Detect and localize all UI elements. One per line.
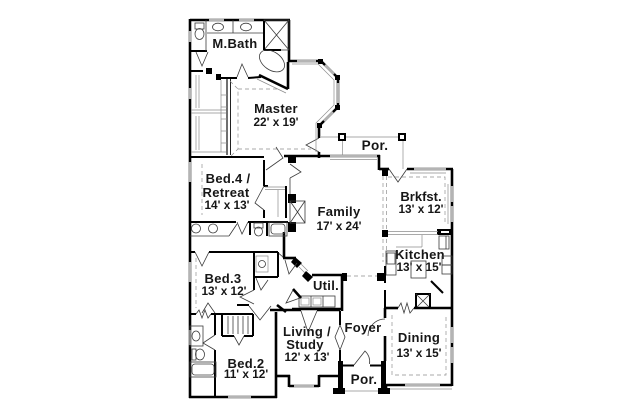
svg-text:Bed.4 /: Bed.4 / xyxy=(206,171,251,186)
svg-text:Util.: Util. xyxy=(313,278,339,293)
svg-text:M.Bath: M.Bath xyxy=(212,36,257,51)
svg-text:22' x 19': 22' x 19' xyxy=(254,115,299,129)
svg-text:Por.: Por. xyxy=(362,138,389,153)
svg-text:14' x 13': 14' x 13' xyxy=(205,198,250,212)
svg-text:17' x 24': 17' x 24' xyxy=(317,219,362,233)
svg-text:Dining: Dining xyxy=(398,330,440,345)
svg-text:12' x 13': 12' x 13' xyxy=(285,350,330,364)
svg-text:Foyer: Foyer xyxy=(345,320,382,335)
svg-text:13' x 15': 13' x 15' xyxy=(397,260,442,274)
svg-text:11' x 12': 11' x 12' xyxy=(224,367,269,381)
svg-text:13' x 15': 13' x 15' xyxy=(397,346,442,360)
svg-text:13' x 12': 13' x 12' xyxy=(399,202,444,216)
svg-text:Family: Family xyxy=(318,204,361,219)
svg-text:13' x 12': 13' x 12' xyxy=(202,284,247,298)
svg-text:Por.: Por. xyxy=(351,372,378,387)
svg-text:Master: Master xyxy=(254,101,298,116)
